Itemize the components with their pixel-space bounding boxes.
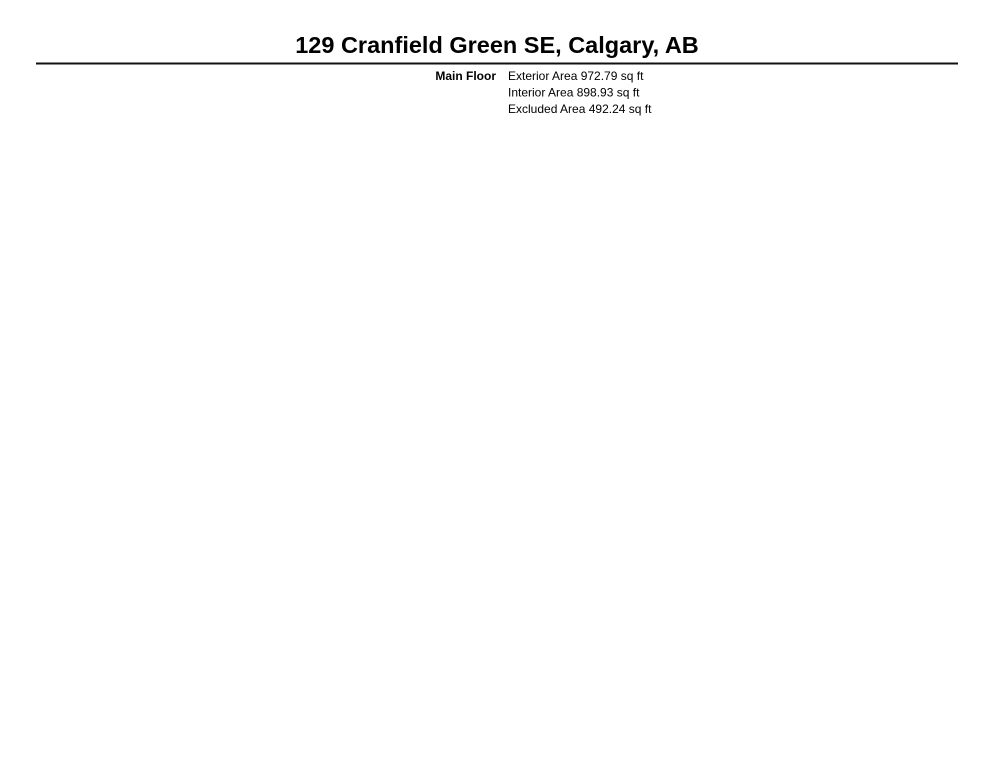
svg-text:Main Floor: Main Floor <box>435 69 496 83</box>
svg-text:Exterior Area 972.79 sq ft: Exterior Area 972.79 sq ft <box>508 69 644 83</box>
svg-text:Interior Area 898.93 sq ft: Interior Area 898.93 sq ft <box>508 86 640 100</box>
svg-text:129 Cranfield Green SE, Calgar: 129 Cranfield Green SE, Calgary, AB <box>295 32 699 58</box>
svg-text:Excluded Area 492.24 sq ft: Excluded Area 492.24 sq ft <box>508 102 652 116</box>
